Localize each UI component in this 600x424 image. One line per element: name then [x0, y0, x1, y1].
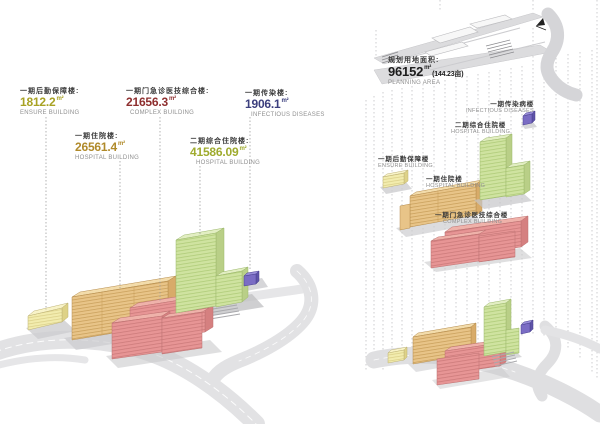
- hospital-phase2-tower-floating: [474, 134, 532, 209]
- label-hospital2-right: 二期综合住院楼 HOSPITAL BUILDING: [451, 122, 510, 136]
- label-en: PLANNING AREA: [388, 80, 463, 87]
- label-infectious-right: 一期传染病楼 INFECTIOUS DISEASES: [462, 101, 534, 115]
- label-en: HOSPITAL BUILDING: [190, 160, 260, 167]
- label-zh: 一期门急诊医技综合楼: [435, 212, 508, 219]
- label-en: INFECTIOUS DISEASES: [462, 108, 534, 114]
- label-en: COMPLEX BUILDING: [435, 219, 508, 225]
- label-complex-right: 一期门急诊医技综合楼 COMPLEX BUILDING: [435, 212, 508, 226]
- label-complex-building: 一期门急诊医技综合楼: 21656.3m² COMPLEX BUILDING: [126, 88, 209, 117]
- diagram-artwork: [0, 0, 600, 424]
- label-hospital1-right: 一期住院楼 HOSPITAL BUILDING: [426, 176, 485, 190]
- label-zh: 二期综合住院楼: [451, 122, 510, 129]
- area-value: 41586.09m²: [190, 146, 260, 160]
- label-en: HOSPITAL BUILDING: [451, 129, 510, 135]
- infectious-building-ground: [521, 320, 533, 334]
- area-value: 21656.3m²: [126, 96, 209, 110]
- ensure-building-floating: [380, 170, 412, 194]
- label-planning-area: 规划用地面积: 96152m²(144.23亩) PLANNING AREA: [388, 57, 463, 87]
- label-en: HOSPITAL BUILDING: [426, 183, 485, 189]
- hospital-phase2-tower-ground: [484, 299, 519, 356]
- label-en: INFECTIOUS DISEASES: [245, 112, 325, 119]
- area-value: 26561.4m²: [75, 141, 139, 155]
- area-value: 1812.2m²: [20, 96, 80, 110]
- label-zh: 一期后勤保障楼: [378, 156, 433, 163]
- label-en: ENSURE BUILDING: [20, 110, 80, 117]
- label-hospital1-building: 一期住院楼: 26561.4m² HOSPITAL BUILDING: [75, 133, 139, 162]
- north-flag-icon: [536, 18, 546, 30]
- label-en: COMPLEX BUILDING: [126, 110, 209, 117]
- label-en: HOSPITAL BUILDING: [75, 155, 139, 162]
- area-value: 96152m²(144.23亩): [388, 65, 463, 80]
- hospital-phase2-tower-left: [176, 228, 248, 313]
- area-value: 1906.1m²: [245, 98, 325, 112]
- label-hospital2-building: 二期综合住院楼: 41586.09m² HOSPITAL BUILDING: [190, 138, 260, 167]
- label-zh: 一期传染病楼: [462, 101, 534, 108]
- massing-diagram-canvas: 一期后勤保障楼: 1812.2m² ENSURE BUILDING 一期门急诊医…: [0, 0, 600, 424]
- label-ensure-right: 一期后勤保障楼 ENSURE BUILDING: [378, 156, 433, 170]
- label-ensure-building: 一期后勤保障楼: 1812.2m² ENSURE BUILDING: [20, 88, 80, 117]
- label-infectious-building: 一期传染楼: 1906.1m² INFECTIOUS DISEASES: [245, 90, 325, 119]
- label-en: ENSURE BUILDING: [378, 163, 433, 169]
- label-zh: 一期住院楼: [426, 176, 485, 183]
